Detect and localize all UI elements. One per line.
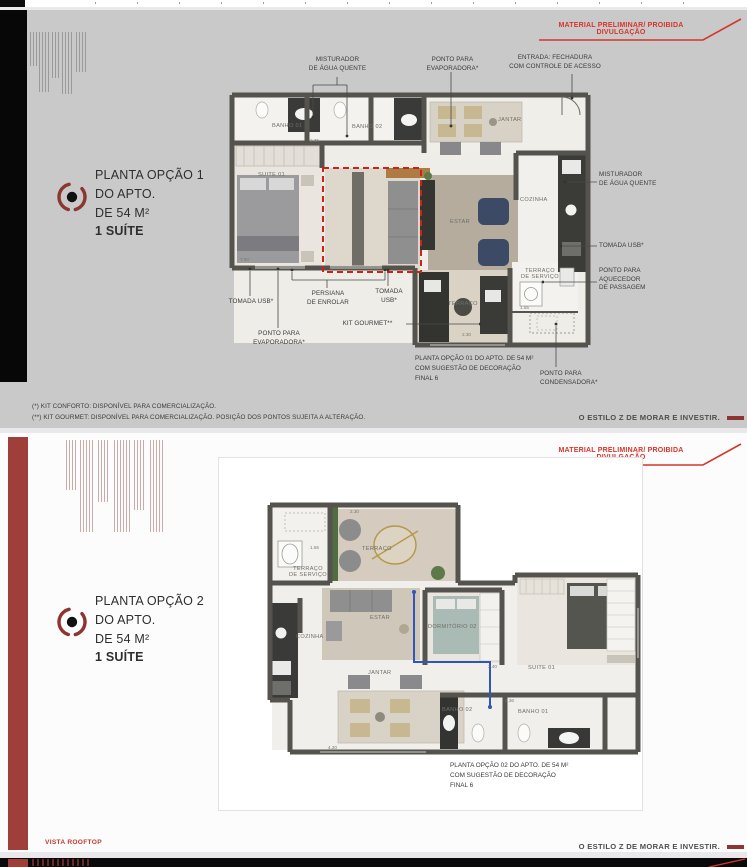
room-label-terraco: TERRAÇO: [448, 301, 478, 307]
page1-title-line3: DE 54 M²: [95, 204, 204, 223]
dimension-label: 1.55: [520, 305, 529, 310]
barcode-decoration: [62, 32, 74, 94]
banner-underline-swoosh: [535, 16, 745, 46]
preliminary-banner: MATERIAL PRELIMINAR/ PROIBIDA DIVULGAÇÃO: [535, 16, 745, 46]
previous-page-ticks: [95, 2, 715, 4]
plan1-caption: PLANTA OPÇÃO 01 DO APTO. DE 54 M² COM SU…: [415, 354, 585, 384]
tagline-text: O ESTILO Z DE MORAR E INVESTIR.: [579, 413, 720, 422]
page2-title-line1: PLANTA OPÇÃO 2: [95, 592, 204, 611]
plan2-card: [218, 457, 643, 811]
callout-misturador-agua-quente-right: MISTURADOR DE ÁGUA QUENTE: [599, 171, 671, 188]
next-page-left-block: [8, 859, 28, 867]
page2-title-line2: DO APTO.: [95, 611, 204, 630]
callout-ponto-evaporadora-top: PONTO PARA EVAPORADORA*: [415, 56, 490, 73]
barcode-decoration: [52, 32, 60, 78]
vista-rooftop-label: VISTA ROOFTOP: [45, 839, 102, 846]
page1-title: PLANTA OPÇÃO 1 DO APTO. DE 54 M² 1 SUÍTE: [95, 166, 204, 241]
room-label-suite: SUITE 01: [258, 172, 285, 178]
tagline-dash: [727, 416, 744, 420]
room-label-cozinha: COZINHA: [520, 197, 548, 203]
previous-page-left-block: [0, 0, 25, 7]
barcode-decoration: [114, 440, 130, 532]
room-label-banho1: BANHO 01: [518, 709, 548, 715]
next-page-edge: [0, 858, 747, 867]
page2-title: PLANTA OPÇÃO 2 DO APTO. DE 54 M² 1 SUÍTE: [95, 592, 204, 667]
dimension-label: 2.30: [462, 332, 471, 337]
brand-logo-icon: [54, 604, 90, 640]
callout-entrada-fechadura: ENTRADA: FECHADURA COM CONTROLE DE ACESS…: [500, 54, 610, 71]
page1-title-line4: 1 SUÍTE: [95, 222, 204, 241]
dimension-label: 4.20: [328, 745, 337, 750]
barcode-decoration: [80, 440, 94, 532]
room-label-estar: ESTAR: [450, 219, 470, 225]
page1-title-line1: PLANTA OPÇÃO 1: [95, 166, 204, 185]
page1-title-line2: DO APTO.: [95, 185, 204, 204]
room-label-banho1: BANHO 01: [272, 123, 302, 129]
callout-tomada-usb-bottom-left: TOMADA USB*: [218, 298, 284, 307]
callout-kit-gourmet: KIT GOURMET**: [330, 320, 405, 329]
room-label-dormitorio2: DORMITÓRIO 02: [428, 624, 477, 630]
barcode-decoration: [134, 440, 146, 510]
room-label-estar: ESTAR: [370, 615, 390, 621]
dimension-label: 2.40: [488, 664, 497, 669]
barcode-decoration: [76, 32, 86, 72]
room-label-banho2: BANHO 02: [352, 124, 382, 130]
barcode-decoration: [98, 440, 110, 502]
room-label-terraco-servico: TERRAÇO DE SERVIÇO: [512, 268, 568, 280]
page2-title-line4: 1 SUÍTE: [95, 648, 204, 667]
dimension-label: 2.36: [505, 698, 514, 703]
callout-aquecedor-passagem: PONTO PARA AQUECEDOR DE PASSAGEM: [599, 267, 671, 293]
plan2-caption: PLANTA OPÇÃO 02 DO APTO. DE 54 M² COM SU…: [450, 761, 620, 791]
page1-tagline: O ESTILO Z DE MORAR E INVESTIR.: [579, 413, 744, 422]
tagline-dash: [727, 845, 744, 849]
callout-misturador-agua-quente-top: MISTURADOR DE ÁGUA QUENTE: [295, 56, 380, 73]
barcode-decoration: [66, 440, 76, 490]
page2-left-bar: [8, 437, 28, 850]
callout-ponto-evaporadora-bottom: PONTO PARA EVAPORADORA*: [238, 330, 320, 347]
barcode-decoration: [150, 440, 164, 532]
page-1: MATERIAL PRELIMINAR/ PROIBIDA DIVULGAÇÃO…: [0, 10, 747, 428]
room-label-banho2: BANHO 02: [442, 707, 472, 713]
brand-logo-icon: [54, 179, 90, 215]
footnote-kit-conforto: (*) KIT CONFORTO: DISPONÍVEL PARA COMERC…: [32, 403, 216, 410]
next-page-banner-swoosh: [707, 858, 747, 867]
page1-left-bar: [0, 10, 27, 382]
tagline-text: O ESTILO Z DE MORAR E INVESTIR.: [579, 842, 720, 851]
callout-persiana-enrolar: PERSIANA DE ENROLAR: [293, 290, 363, 307]
page2-tagline: O ESTILO Z DE MORAR E INVESTIR.: [579, 842, 744, 851]
dimension-label: 2.30: [350, 509, 359, 514]
dimension-label: 7.90: [240, 257, 249, 262]
callout-tomada-usb-right: TOMADA USB*: [599, 242, 671, 251]
room-label-cozinha: COZINHA: [296, 634, 324, 640]
footnote-kit-gourmet: (**) KIT GOURMET: DISPONÍVEL PARA COMERC…: [32, 414, 365, 421]
room-label-suite: SUITE 01: [528, 665, 555, 671]
room-label-terraco: TERRAÇO: [362, 546, 392, 552]
previous-page-edge: [0, 0, 747, 7]
barcode-decoration: [30, 32, 37, 66]
dimension-label: 2.36: [310, 138, 319, 143]
room-label-terraco-servico: TERRAÇO DE SERVIÇO: [280, 566, 336, 578]
room-label-jantar: JANTAR: [368, 670, 391, 676]
barcode-decoration: [39, 32, 50, 92]
room-label-jantar: JANTAR: [498, 117, 521, 123]
next-page-stripes: [32, 859, 90, 866]
page-2: MATERIAL PRELIMINAR/ PROIBIDA DIVULGAÇÃO…: [0, 433, 747, 852]
dimension-label: 1.55: [310, 545, 319, 550]
page2-title-line3: DE 54 M²: [95, 630, 204, 649]
flyer-canvas: MATERIAL PRELIMINAR/ PROIBIDA DIVULGAÇÃO…: [0, 0, 747, 867]
callout-tomada-usb-bottom-center: TOMADA USB*: [365, 288, 413, 305]
